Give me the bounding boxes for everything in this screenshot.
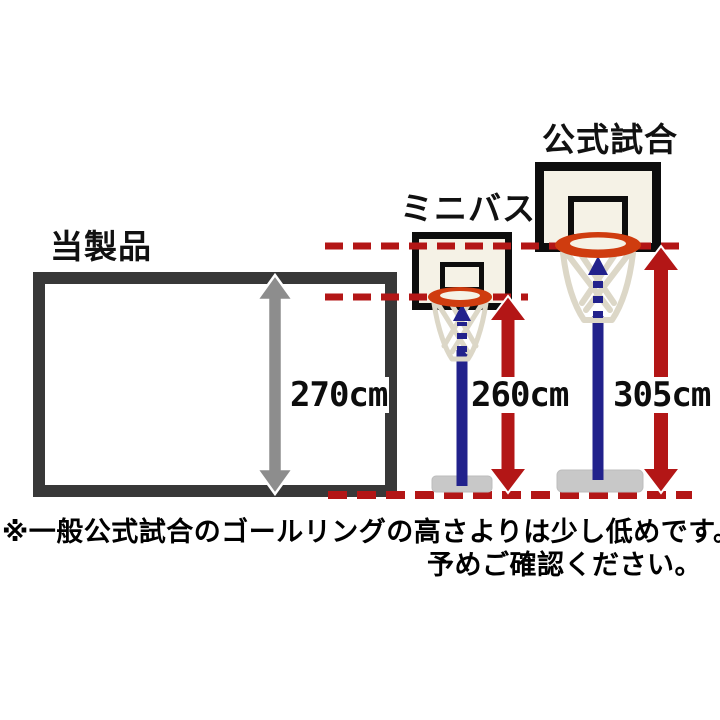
height-comparison-diagram: 当製品 ミニバス 公式試合 270cm 260cm 305cm ※一般公式試合の… (0, 0, 720, 720)
official-height-value: 305cm (611, 377, 712, 413)
disclaimer-note: ※一般公式試合のゴールリングの高さよりは少し低めです。 予めご確認ください。 (2, 516, 702, 582)
mini-pole (457, 350, 468, 486)
official-label: 公式試合 (542, 123, 678, 156)
official-pole (593, 316, 604, 480)
disclaimer-note-line1: ※一般公式試合のゴールリングの高さよりは少し低めです。 (2, 516, 702, 549)
official-rim-opening (570, 238, 626, 250)
official-hoop (555, 232, 643, 492)
minibasket-height-value: 260cm (469, 377, 570, 413)
minibasket-label: ミニバス (400, 192, 536, 225)
double-arrow-vertical-red-icon (642, 246, 680, 493)
product-height-value: 270cm (288, 377, 389, 413)
disclaimer-note-line2: 予めご確認ください。 (2, 549, 702, 582)
product-label: 当製品 (50, 230, 152, 263)
diagram-graphics (0, 0, 720, 720)
mini-rim-opening (440, 291, 480, 300)
